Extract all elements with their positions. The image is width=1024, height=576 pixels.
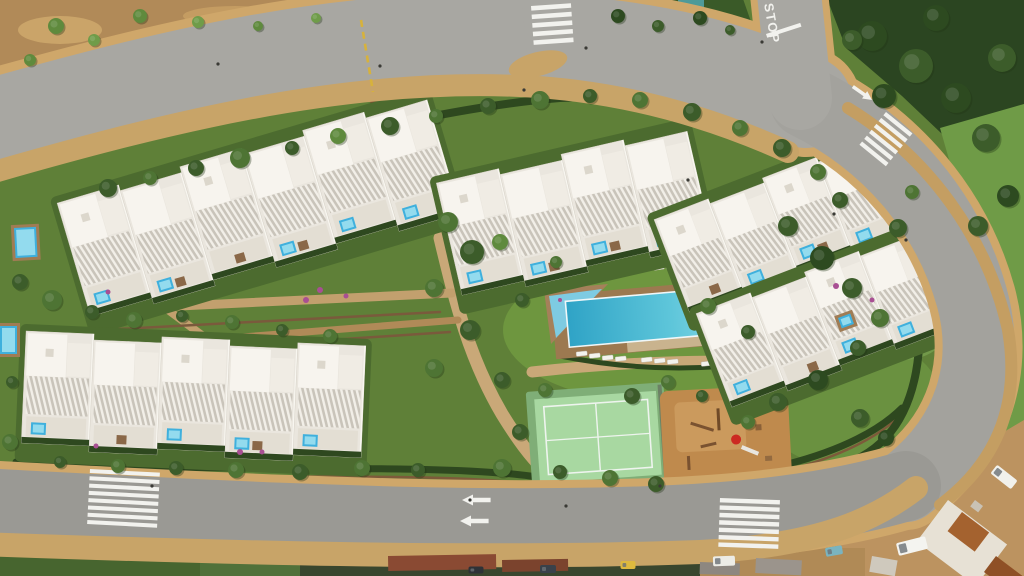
tree-highlight (781, 219, 790, 228)
tree-highlight (287, 143, 293, 149)
neighbor-roof (755, 558, 802, 575)
tree-highlight (135, 11, 141, 17)
tree-highlight (650, 478, 657, 485)
building-row-bottom-left (14, 324, 372, 477)
unit-wood-deck (252, 441, 262, 450)
tree-highlight (194, 18, 199, 23)
tree-highlight (971, 219, 980, 228)
tree-highlight (946, 88, 960, 102)
street-dot (904, 238, 907, 241)
unit-roof-volume (66, 343, 91, 378)
building-unit (293, 343, 366, 458)
tree-highlight (727, 27, 732, 32)
tree-highlight (233, 151, 242, 160)
tree-highlight (702, 300, 709, 307)
tree-highlight (178, 312, 183, 317)
unit-roof-volume (134, 352, 159, 387)
tree-highlight (852, 342, 859, 349)
tree-highlight (113, 461, 119, 467)
unit-pergola-slats (297, 388, 361, 429)
tree-highlight (14, 276, 21, 283)
tree-highlight (552, 258, 557, 263)
unit-pergola-slats (229, 391, 293, 432)
tree-highlight (428, 362, 436, 370)
bougainvillea (870, 298, 875, 303)
bougainvillea (833, 283, 839, 289)
tree-highlight (854, 412, 862, 420)
sun-lounger (615, 356, 626, 362)
bougainvillea (558, 298, 562, 302)
vehicle (540, 565, 556, 573)
street-dot (150, 484, 153, 487)
tree-highlight (171, 463, 177, 469)
building-unit (157, 337, 230, 452)
tree-highlight (464, 244, 475, 255)
tree-highlight (494, 236, 501, 243)
street-dot (760, 40, 763, 43)
bougainvillea (317, 287, 323, 293)
tree-highlight (862, 26, 876, 40)
neighbor-roof (502, 559, 568, 572)
tree-highlight (698, 392, 703, 397)
tree-highlight (294, 466, 301, 473)
tree-highlight (227, 317, 233, 323)
tree-highlight (1000, 188, 1010, 198)
tree-highlight (634, 94, 641, 101)
tree-highlight (190, 162, 197, 169)
tree-highlight (613, 11, 619, 17)
tree-highlight (892, 222, 900, 230)
tree-highlight (384, 120, 392, 128)
bougainvillea (237, 449, 243, 455)
sun-lounger (654, 358, 665, 364)
tree-highlight (413, 465, 419, 471)
tree-highlight (845, 281, 854, 290)
tree-highlight (463, 323, 472, 332)
unit-rooftop-box (317, 361, 325, 369)
private-pool (0, 323, 20, 357)
unit-plunge-pool-water (169, 430, 180, 438)
tree-highlight (814, 250, 825, 261)
private-pool (11, 224, 41, 261)
tree-highlight (734, 122, 741, 129)
private-pool-highlight (2, 328, 15, 352)
tree-highlight (772, 396, 780, 404)
tree-highlight (8, 378, 13, 383)
tree-highlight (496, 462, 504, 470)
tree-highlight (514, 426, 521, 433)
street-dot (832, 212, 835, 215)
tree-highlight (626, 390, 633, 397)
unit-plunge-pool-water (304, 436, 315, 444)
aerial-photo-residential-complex: STOP (0, 0, 1024, 576)
unit-rooftop-box (181, 355, 189, 363)
unit-pergola-slats (161, 382, 225, 423)
sun-lounger (667, 359, 678, 365)
unit-wood-deck (116, 435, 126, 444)
vehicle-windshield (542, 567, 546, 571)
bougainvillea (94, 444, 99, 449)
tree-highlight (356, 462, 363, 469)
street-dot (564, 504, 567, 507)
tree-highlight (90, 36, 95, 41)
street-dot (522, 88, 525, 91)
sun-lounger (641, 357, 652, 363)
private-pool-highlight (16, 229, 35, 256)
tree-highlight (482, 100, 489, 107)
tree-highlight (811, 373, 820, 382)
tree-highlight (743, 417, 749, 423)
vehicle (469, 567, 484, 574)
tree-highlight (102, 182, 110, 190)
unit-plunge-pool-water (33, 424, 44, 432)
tree-highlight (663, 377, 669, 383)
bougainvillea (303, 297, 309, 303)
unit-pergola-slats (26, 376, 90, 417)
tree-highlight (128, 314, 135, 321)
tree-highlight (907, 187, 913, 193)
tree-highlight (880, 432, 887, 439)
vehicle (621, 561, 636, 569)
tree-highlight (604, 472, 611, 479)
unit-plunge-pool-water (236, 439, 247, 447)
tree-highlight (441, 215, 450, 224)
street-dot (686, 178, 689, 181)
tree-highlight (145, 173, 151, 179)
street-dot (584, 46, 587, 49)
unit-roof-volume (270, 358, 295, 393)
building-unit (21, 331, 94, 446)
tree-highlight (927, 9, 939, 21)
bougainvillea (344, 294, 349, 299)
building-unit (89, 340, 162, 455)
tree-highlight (428, 282, 436, 290)
sun-lounger (576, 351, 587, 357)
bougainvillea (106, 290, 111, 295)
road-branch-stop (788, 0, 800, 98)
tree-highlight (4, 436, 11, 443)
tree-highlight (585, 91, 591, 97)
tree-highlight (976, 128, 989, 141)
unit-roof-volume (202, 349, 227, 384)
tree-highlight (534, 94, 542, 102)
play-equipment (765, 456, 772, 461)
tree-highlight (743, 327, 749, 333)
tree-highlight (812, 166, 819, 173)
tree-highlight (874, 312, 882, 320)
tree-highlight (26, 56, 31, 61)
tree-highlight (278, 326, 283, 331)
unit-roof-volume (338, 355, 363, 390)
vehicle-windshield (827, 549, 832, 555)
tree-highlight (834, 194, 841, 201)
street-dot (216, 62, 219, 65)
tree-highlight (695, 13, 701, 19)
sun-lounger (589, 353, 600, 359)
unit-rooftop-box (45, 349, 53, 357)
bougainvillea (260, 450, 265, 455)
vehicle-windshield (715, 558, 721, 564)
unit-roof-volume (230, 348, 271, 392)
unit-roof-volume (94, 342, 135, 386)
tree-highlight (313, 15, 318, 20)
sun-lounger (602, 355, 613, 361)
tree-highlight (517, 295, 523, 301)
tree-highlight (845, 33, 854, 42)
aerial-scene: STOP (0, 0, 1024, 576)
vehicle-windshield (471, 569, 475, 572)
tree-highlight (776, 142, 784, 150)
tree-highlight (992, 48, 1005, 61)
tree-highlight (56, 458, 61, 463)
vehicle (713, 556, 735, 567)
street-dot (468, 498, 471, 501)
street-dot (658, 484, 661, 487)
tree-highlight (686, 106, 694, 114)
tree-highlight (431, 111, 437, 117)
tree-highlight (540, 385, 546, 391)
tennis-court (526, 382, 671, 491)
tree-highlight (45, 293, 54, 302)
tree-highlight (230, 464, 237, 471)
tree-highlight (50, 20, 57, 27)
tree-highlight (876, 88, 887, 99)
tree-highlight (654, 22, 659, 27)
tree-highlight (332, 130, 339, 137)
vehicle-windshield (623, 563, 627, 567)
building-unit (225, 346, 298, 461)
tree-highlight (496, 374, 503, 381)
tree-highlight (325, 331, 331, 337)
unit-pergola-slats (93, 385, 157, 426)
tree-highlight (87, 307, 93, 313)
tree-highlight (904, 54, 919, 69)
tree-highlight (555, 467, 561, 473)
tree-highlight (255, 23, 260, 28)
street-dot (378, 64, 381, 67)
